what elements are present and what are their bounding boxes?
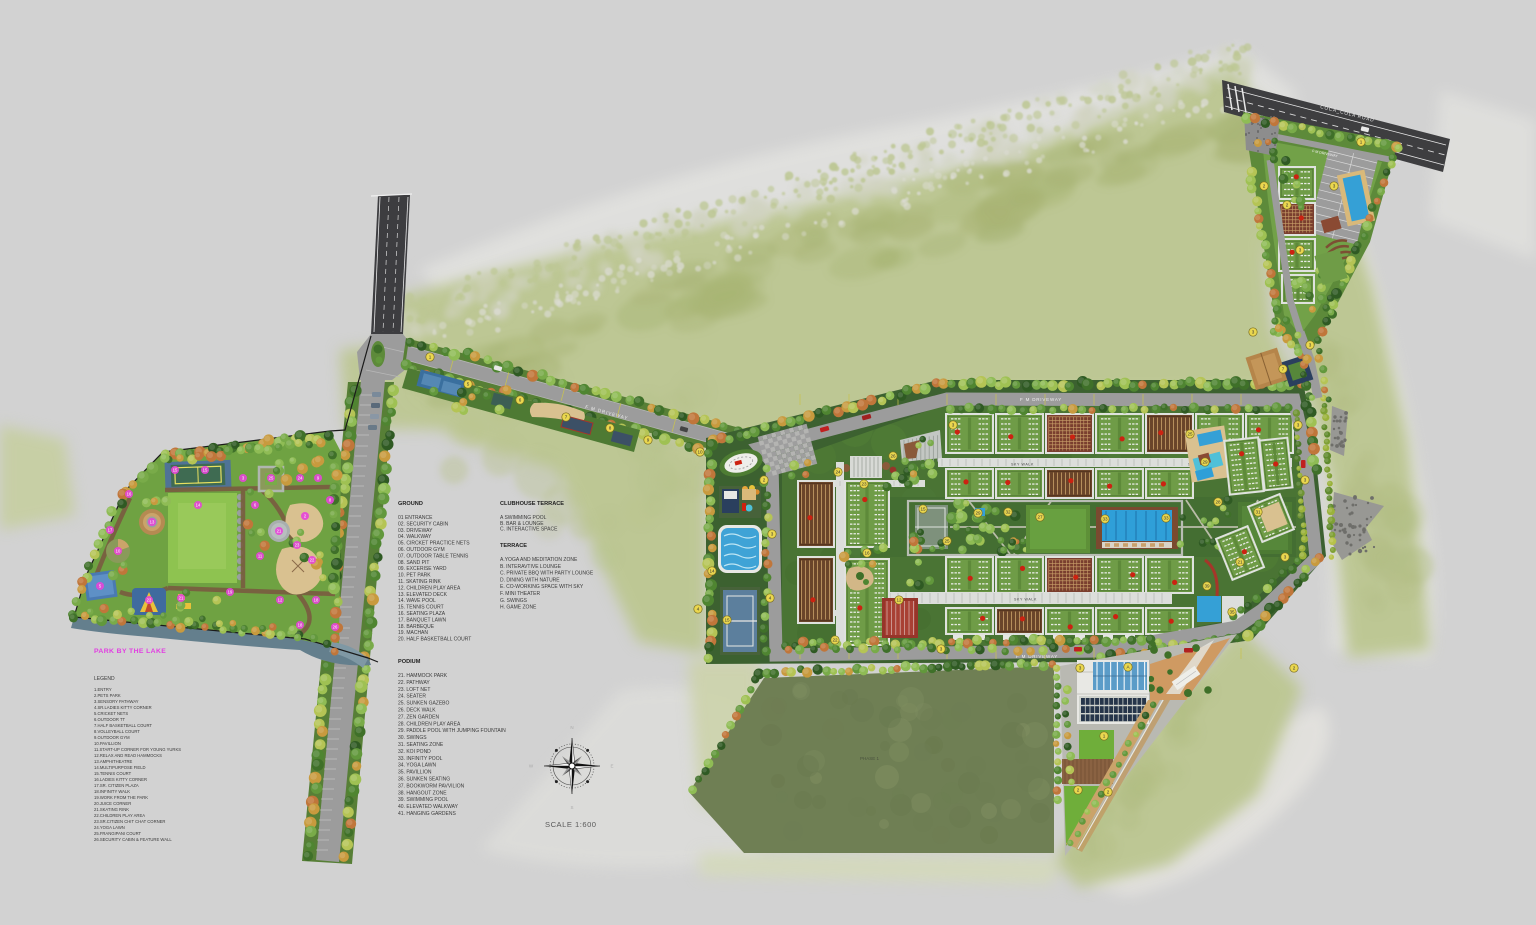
svg-text:10: 10 <box>116 549 121 554</box>
svg-text:35: 35 <box>1229 610 1235 615</box>
svg-text:1: 1 <box>1360 140 1363 145</box>
svg-text:12: 12 <box>278 598 283 603</box>
svg-text:22: 22 <box>147 598 152 603</box>
svg-text:15: 15 <box>724 618 730 623</box>
svg-text:25: 25 <box>944 539 950 544</box>
svg-text:PARK BY THE LAKE: PARK BY THE LAKE <box>94 648 166 655</box>
svg-text:N: N <box>570 725 573 730</box>
svg-text:19: 19 <box>228 590 233 595</box>
svg-text:TERRACE: TERRACE <box>500 543 527 549</box>
svg-text:22: 22 <box>310 558 315 563</box>
svg-text:32: 32 <box>1005 510 1011 515</box>
svg-text:3: 3 <box>1333 184 1336 189</box>
svg-text:2: 2 <box>1286 203 1289 208</box>
svg-text:PHASE 1: PHASE 1 <box>860 756 880 761</box>
svg-text:25: 25 <box>1187 432 1193 437</box>
svg-text:6: 6 <box>519 398 522 403</box>
svg-text:14: 14 <box>709 569 715 574</box>
svg-text:2: 2 <box>1107 790 1110 795</box>
svg-text:3: 3 <box>1309 343 1312 348</box>
svg-text:29: 29 <box>975 511 981 516</box>
svg-text:4: 4 <box>697 607 700 612</box>
svg-text:3: 3 <box>1299 248 1302 253</box>
svg-text:GROUND: GROUND <box>398 501 423 507</box>
svg-text:26: 26 <box>890 454 896 459</box>
svg-text:4: 4 <box>769 596 772 601</box>
svg-text:26: 26 <box>333 625 338 630</box>
svg-text:F M DRIVEWAY: F M DRIVEWAY <box>1016 654 1058 659</box>
svg-text:16: 16 <box>127 492 132 497</box>
svg-text:11: 11 <box>258 554 263 559</box>
svg-text:3: 3 <box>1304 478 1307 483</box>
svg-text:33: 33 <box>1102 517 1108 522</box>
svg-text:23: 23 <box>295 543 300 548</box>
svg-text:24: 24 <box>835 470 841 475</box>
svg-text:F M DRIVEWAY: F M DRIVEWAY <box>1020 397 1062 402</box>
svg-text:SCALE 1:600: SCALE 1:600 <box>545 820 597 829</box>
svg-text:3: 3 <box>1252 330 1255 335</box>
svg-text:2: 2 <box>1263 184 1266 189</box>
svg-text:28: 28 <box>1215 500 1221 505</box>
svg-text:12: 12 <box>896 598 902 603</box>
svg-text:1: 1 <box>1103 734 1106 739</box>
svg-text:21: 21 <box>277 529 282 534</box>
svg-text:CLUBHOUSE TERRACE: CLUBHOUSE TERRACE <box>500 501 564 507</box>
svg-text:21: 21 <box>1237 560 1243 565</box>
svg-text:18: 18 <box>314 598 319 603</box>
svg-text:22: 22 <box>832 638 838 643</box>
svg-text:14: 14 <box>196 503 201 508</box>
svg-text:15: 15 <box>173 468 178 473</box>
svg-text:9: 9 <box>647 438 650 443</box>
svg-text:3: 3 <box>940 647 943 652</box>
svg-text:7: 7 <box>1282 367 1285 372</box>
svg-text:10: 10 <box>697 450 703 455</box>
svg-text:27: 27 <box>1037 515 1043 520</box>
svg-text:15: 15 <box>920 507 926 512</box>
svg-text:2: 2 <box>1077 788 1080 793</box>
svg-text:23: 23 <box>861 482 867 487</box>
svg-text:17: 17 <box>108 528 113 533</box>
svg-text:18: 18 <box>298 623 303 628</box>
svg-text:21: 21 <box>179 596 184 601</box>
svg-text:3: 3 <box>1284 555 1287 560</box>
svg-text:LEGEND: LEGEND <box>94 676 115 682</box>
svg-text:15: 15 <box>203 468 208 473</box>
svg-text:S: S <box>570 805 573 810</box>
svg-text:3: 3 <box>1297 423 1300 428</box>
svg-text:PODIUM: PODIUM <box>398 659 421 665</box>
svg-text:3: 3 <box>1079 666 1082 671</box>
svg-text:SKY WALK: SKY WALK <box>1011 463 1034 467</box>
svg-text:1: 1 <box>429 355 432 360</box>
svg-text:2: 2 <box>1293 666 1296 671</box>
svg-text:7: 7 <box>565 415 568 420</box>
svg-text:25: 25 <box>269 476 274 481</box>
svg-text:39: 39 <box>1204 584 1210 589</box>
svg-text:SKY WALK: SKY WALK <box>1014 598 1037 602</box>
svg-text:E: E <box>610 764 613 769</box>
svg-text:24: 24 <box>298 476 303 481</box>
svg-text:13: 13 <box>150 520 155 525</box>
svg-text:16: 16 <box>864 551 870 556</box>
svg-text:3: 3 <box>771 532 774 537</box>
svg-text:8: 8 <box>609 426 612 431</box>
svg-text:3: 3 <box>952 423 955 428</box>
svg-text:29: 29 <box>1202 460 1208 465</box>
svg-text:5: 5 <box>467 382 470 387</box>
svg-text:33: 33 <box>1163 516 1169 521</box>
svg-text:31: 31 <box>1255 510 1261 515</box>
svg-text:2: 2 <box>763 478 766 483</box>
